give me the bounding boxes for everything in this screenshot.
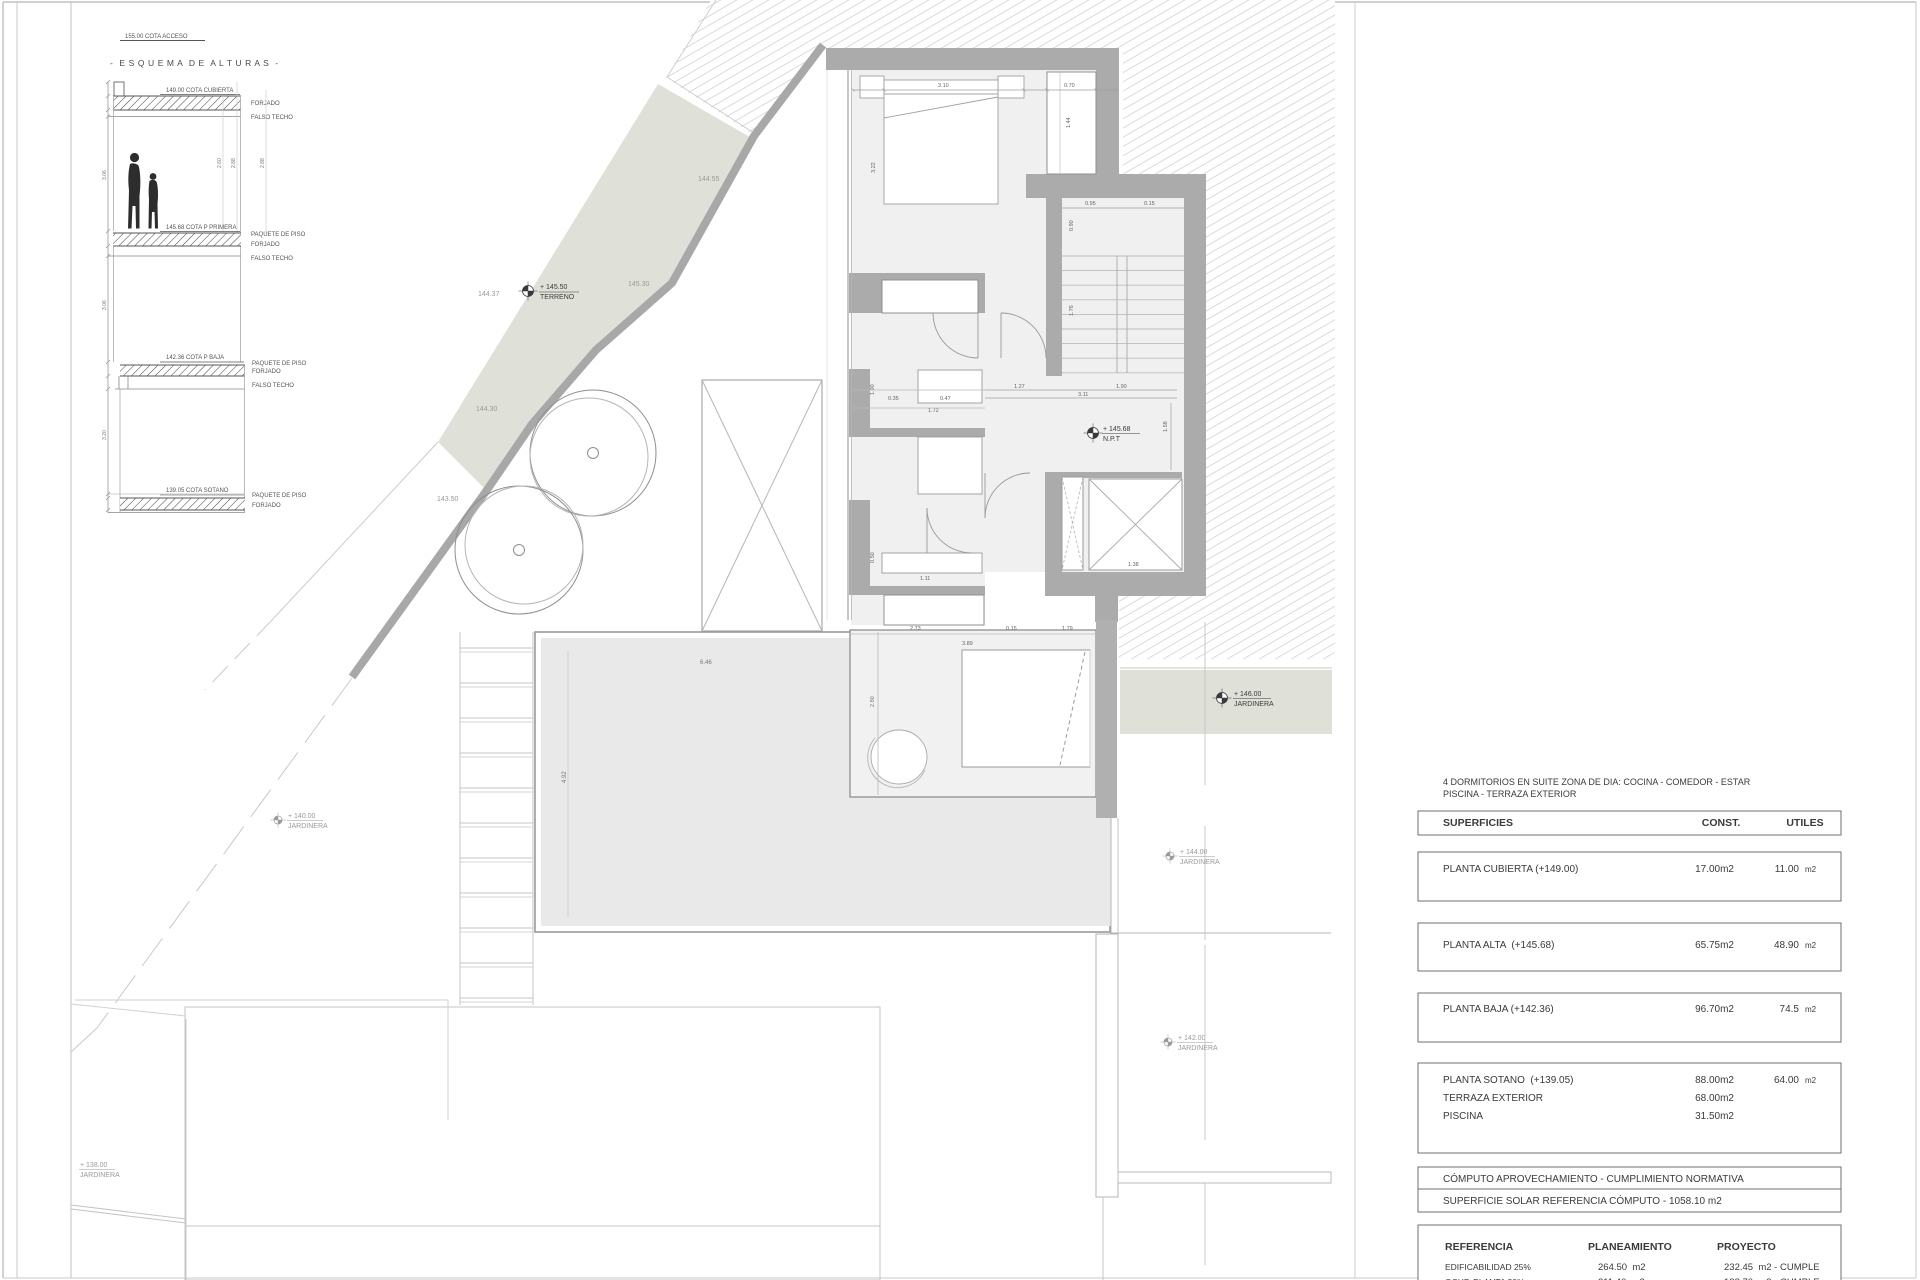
svg-text:FORJADO: FORJADO [251,101,280,107]
svg-text:144.30: 144.30 [476,406,498,413]
svg-text:+ 140.00: + 140.00 [288,813,316,820]
svg-text:31.50m2: 31.50m2 [1695,1111,1734,1122]
svg-text:65.75m2: 65.75m2 [1695,940,1734,951]
svg-text:145.68 COTA P PRIMERA: 145.68 COTA P PRIMERA [166,225,236,231]
svg-text:m2: m2 [1805,1005,1817,1014]
svg-text:1.90: 1.90 [1116,384,1127,390]
svg-text:0.50: 0.50 [870,552,876,563]
svg-text:FALSO TECHO: FALSO TECHO [251,256,293,262]
svg-text:3.89: 3.89 [962,641,973,647]
svg-text:68.00m2: 68.00m2 [1695,1093,1734,1104]
svg-text:JARDINERA: JARDINERA [288,823,328,830]
svg-text:SUPERFICIE SOLAR REFERENCIA CÓ: SUPERFICIE SOLAR REFERENCIA CÓMPUTO - 10… [1443,1194,1722,1207]
svg-text:96.70m2: 96.70m2 [1695,1004,1734,1015]
svg-text:264.50 m2: 264.50 m2 [1598,1262,1646,1273]
svg-text:PISCINA - TERRAZA EXTERIOR: PISCINA - TERRAZA EXTERIOR [1443,789,1577,799]
svg-text:TERRAZA EXTERIOR: TERRAZA EXTERIOR [1443,1093,1543,1104]
svg-text:1.90: 1.90 [870,384,876,395]
svg-text:6.46: 6.46 [700,660,712,666]
svg-text:64.00: 64.00 [1774,1075,1799,1086]
svg-text:74.5: 74.5 [1780,1004,1800,1015]
svg-text:1.44: 1.44 [1066,117,1072,128]
svg-text:TERRENO: TERRENO [540,294,575,301]
svg-text:UTILES: UTILES [1786,817,1823,829]
svg-text:1.27: 1.27 [1014,384,1025,390]
svg-text:1.72: 1.72 [928,408,939,414]
svg-text:1.58: 1.58 [1163,421,1169,432]
svg-text:+ 142.00: + 142.00 [1178,1035,1206,1042]
svg-text:3.22: 3.22 [871,162,877,173]
svg-text:+ 138.00: + 138.00 [80,1162,108,1169]
svg-text:+ 145.68: + 145.68 [1103,426,1131,433]
svg-text:JARDINERA: JARDINERA [1180,859,1220,866]
svg-text:149.00 COTA CUBIERTA: 149.00 COTA CUBIERTA [166,88,233,94]
svg-text:EDIFICABILIDAD 25%: EDIFICABILIDAD 25% [1445,1262,1531,1272]
svg-text:+ 145.50: + 145.50 [540,284,568,291]
svg-text:+ 144.00: + 144.00 [1180,849,1208,856]
svg-text:PLANTA SOTANO (+139.05): PLANTA SOTANO (+139.05) [1443,1075,1574,1086]
svg-text:155.00 COTA ACCESO: 155.00 COTA ACCESO [125,34,188,40]
svg-text:m2: m2 [1805,865,1817,874]
svg-text:PLANTA BAJA (+142.36): PLANTA BAJA (+142.36) [1443,1004,1554,1015]
svg-text:N.P.T: N.P.T [1103,436,1121,443]
svg-text:232.45 m2 - CUMPLE: 232.45 m2 - CUMPLE [1724,1262,1820,1273]
svg-text:JARDINERA: JARDINERA [1178,1045,1218,1052]
svg-text:m2: m2 [1805,1076,1817,1085]
svg-text:CÓMPUTO APROVECHAMIENTO - CUMP: CÓMPUTO APROVECHAMIENTO - CUMPLIMIENTO N… [1443,1172,1744,1185]
svg-text:2.60: 2.60 [217,158,223,168]
svg-text:142.36 COTA P BAJA: 142.36 COTA P BAJA [166,355,224,361]
svg-text:PAQUETE DE PISO: PAQUETE DE PISO [252,493,307,499]
svg-text:139.05 COTA SOTANO: 139.05 COTA SOTANO [166,488,229,494]
svg-text:JARDINERA: JARDINERA [1234,701,1274,708]
svg-text:2.73: 2.73 [910,626,921,632]
svg-text:0.47: 0.47 [940,396,951,402]
svg-text:FORJADO: FORJADO [252,503,281,509]
svg-text:144.37: 144.37 [478,291,500,298]
svg-text:144.55: 144.55 [698,176,720,183]
svg-text:FALSO TECHO: FALSO TECHO [252,383,294,389]
svg-text:PISCINA: PISCINA [1443,1111,1483,1122]
svg-text:3.06: 3.06 [102,300,108,310]
svg-text:2.88: 2.88 [260,158,266,168]
svg-text:145.30: 145.30 [628,281,650,288]
svg-text:JARDINERA: JARDINERA [80,1172,120,1179]
svg-text:PLANTA ALTA (+145.68): PLANTA ALTA (+145.68) [1443,940,1554,951]
svg-text:PAQUETE DE PISO: PAQUETE DE PISO [251,232,306,238]
svg-text:1.38: 1.38 [1128,562,1139,568]
svg-text:+ 146.00: + 146.00 [1234,691,1262,698]
svg-text:FORJADO: FORJADO [252,369,281,375]
svg-text:3.20: 3.20 [102,430,108,440]
svg-text:143.50: 143.50 [437,496,459,503]
svg-text:0.95: 0.95 [1085,201,1096,207]
svg-text:PLANTA CUBIERTA (+149.00): PLANTA CUBIERTA (+149.00) [1443,864,1578,875]
svg-text:PLANEAMIENTO: PLANEAMIENTO [1588,1241,1672,1253]
svg-text:CONST.: CONST. [1702,817,1741,829]
svg-text:PROYECTO: PROYECTO [1717,1241,1776,1253]
svg-text:88.00m2: 88.00m2 [1695,1075,1734,1086]
svg-text:2.88: 2.88 [231,158,237,168]
svg-text:0.90: 0.90 [1069,220,1075,231]
svg-text:4 DORMITORIOS EN SUITE ZONA DE: 4 DORMITORIOS EN SUITE ZONA DE DIA: COCI… [1443,777,1751,787]
svg-text:0.70: 0.70 [1064,83,1075,89]
svg-text:2.80: 2.80 [870,696,876,707]
svg-text:FORJADO: FORJADO [251,242,280,248]
svg-text:3.10: 3.10 [938,83,949,89]
svg-text:SUPERFICIES: SUPERFICIES [1443,817,1513,829]
svg-text:REFERENCIA: REFERENCIA [1445,1241,1514,1253]
svg-text:1.11: 1.11 [920,576,930,582]
svg-text:0.15: 0.15 [1144,201,1155,207]
svg-text:- E S Q U E M A D E A L T U: - E S Q U E M A D E A L T U R A S - [110,58,279,68]
svg-text:m2: m2 [1805,941,1817,950]
svg-text:11.00: 11.00 [1775,864,1800,875]
svg-text:1.76: 1.76 [1069,305,1075,316]
svg-text:4.92: 4.92 [562,771,568,783]
svg-text:48.90: 48.90 [1774,940,1799,951]
svg-text:0.15: 0.15 [1006,626,1017,632]
svg-text:17.00m2: 17.00m2 [1695,864,1734,875]
svg-text:PAQUETE DE PISO: PAQUETE DE PISO [252,361,307,367]
svg-text:0.35: 0.35 [888,396,899,402]
svg-text:3.11: 3.11 [1078,392,1088,398]
svg-text:3.06: 3.06 [102,170,108,180]
svg-text:1.79: 1.79 [1062,626,1073,632]
svg-text:FALSO TECHO: FALSO TECHO [251,115,293,121]
